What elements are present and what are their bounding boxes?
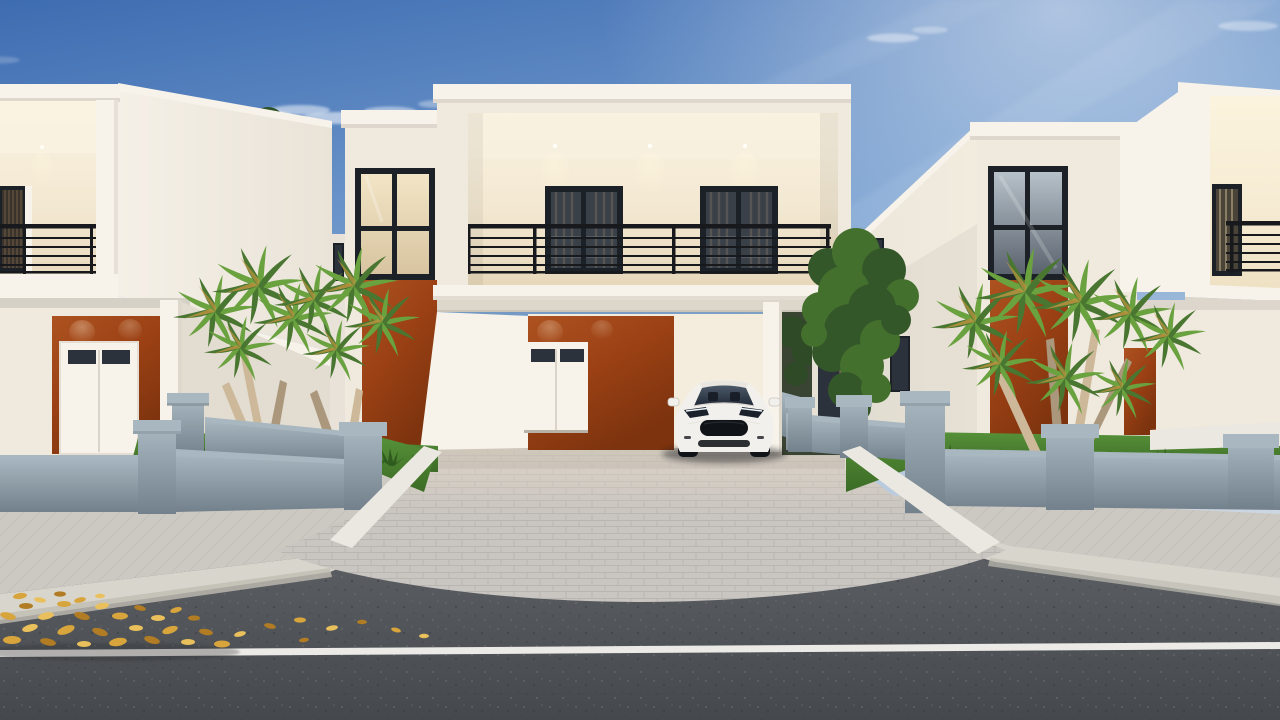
center-balcony-door-right (700, 186, 778, 274)
center-left-pier (437, 103, 468, 300)
fence-pillar-cap (1223, 434, 1279, 448)
tower-window (355, 168, 435, 280)
fence-pillar-cap (339, 422, 387, 436)
left-balcony-ceiling (0, 101, 98, 153)
scene-render: Street view of modern two-story white ho… (0, 0, 1280, 720)
car-lower-intake (698, 440, 750, 447)
carport-entry-door (524, 342, 588, 433)
left-balcony-door (0, 186, 32, 272)
car-seat (730, 392, 740, 401)
car-mirror-left (668, 398, 679, 406)
fence-pillar (138, 426, 176, 514)
center-balcony-ceiling (465, 113, 838, 159)
center-balcony-door-left (545, 186, 623, 274)
render-canvas: Street view of modern two-story white ho… (0, 0, 1280, 720)
fence-pillar-cap (1041, 424, 1099, 438)
left-balcony-downlight (40, 145, 44, 149)
left-house-slab (0, 274, 118, 298)
carport-left-inner-wall (420, 312, 528, 450)
left-house (0, 83, 332, 472)
fence-pillar (1046, 428, 1094, 510)
car-mirror-right (769, 398, 780, 406)
fence-pillar (1228, 438, 1274, 508)
left-house-entry-door (60, 342, 138, 454)
car-seat (708, 392, 718, 401)
